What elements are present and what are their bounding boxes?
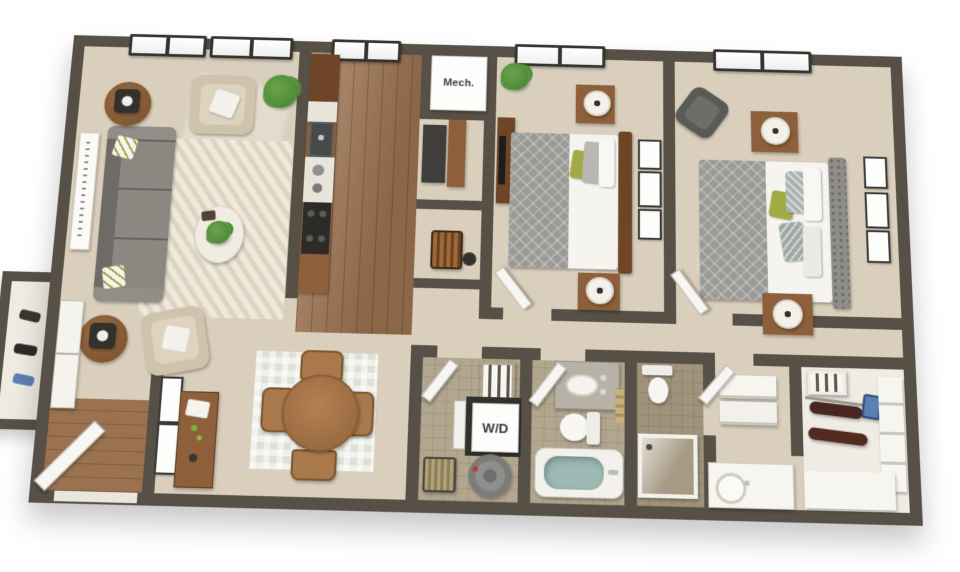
bath2-toilet-tank (642, 365, 672, 376)
wall-hallcloset-bottom (413, 278, 479, 289)
bedroom2-window (713, 49, 812, 73)
closet-door-divider (56, 352, 79, 355)
console-apple-1 (191, 425, 198, 431)
bedroom1-headboard (618, 131, 632, 273)
mech-closet: Mech. (430, 55, 488, 111)
canvas-background: Mech. (0, 0, 960, 572)
console-tray (185, 399, 211, 419)
table-lamp-bottom (88, 323, 117, 349)
kitchen-pantry (308, 54, 340, 102)
dressing-faucet (744, 481, 749, 486)
sofa-armrest-bottom (93, 287, 165, 303)
bedroom1-duvet (508, 132, 570, 268)
bedroom2-lamp-bottom (772, 299, 803, 329)
bedroom1-window (514, 44, 605, 68)
bath1-towels (615, 388, 623, 423)
bathtub-faucet (608, 470, 618, 475)
coffee-table-book (201, 210, 216, 221)
wall-bath1-bath2 (624, 362, 637, 505)
washer-dryer-unit: W/D (471, 403, 519, 453)
hall-closet-basket (430, 230, 463, 269)
bedroom2-frame-2 (864, 192, 889, 229)
living-window-1 (128, 34, 207, 58)
counter-item (312, 164, 324, 176)
kitchen-window (331, 39, 401, 62)
hall-bookcase (447, 120, 467, 188)
wall-hallcloset-top (416, 199, 482, 210)
sofa-pillow-2 (102, 265, 126, 289)
washer-dryer-label: W/D (482, 420, 508, 436)
laundry-basket (422, 457, 456, 493)
bedroom1-pillow-white (599, 138, 615, 187)
kitchen-counter-1 (307, 101, 337, 122)
dressing-shelf-2 (720, 401, 778, 426)
dressing-vanity (708, 462, 795, 510)
bathtub-water (544, 456, 604, 491)
shower (638, 433, 698, 499)
bedroom2-chair-cushion (683, 94, 722, 131)
console-candle (189, 454, 198, 462)
toilet-bowl (560, 413, 589, 441)
wall-bedroom1-bedroom2 (663, 61, 676, 324)
shower-head (646, 444, 652, 450)
faucet (318, 135, 324, 141)
sofa (93, 126, 177, 303)
bedroom1-frame-1 (638, 139, 662, 169)
bedroom2-lamp-top (761, 117, 791, 145)
bedroom1-frame-3 (638, 209, 662, 240)
bedroom2-pillow-white (803, 168, 822, 221)
hamper-red-dot (473, 466, 478, 471)
bedroom1-lamp-top (583, 90, 610, 116)
hall-desk (421, 125, 447, 183)
wall-bedroom1-bottom-a (479, 307, 503, 319)
armchair-top (188, 74, 256, 134)
wall-hall-bath-b (482, 347, 541, 360)
bath1-faucet-1 (600, 375, 606, 381)
front-door-sill (54, 491, 138, 504)
bedroom1-frame-2 (638, 171, 662, 207)
floor-plan: Mech. (28, 35, 922, 526)
bedroom1-tv (498, 136, 506, 185)
bathtub (534, 447, 623, 499)
art-script (77, 139, 91, 241)
bath1-toilet (560, 411, 601, 445)
dining-chair-bottom (290, 449, 337, 481)
dressing-sink (715, 473, 746, 505)
kitchen-counter-2 (303, 157, 335, 203)
table-lamp-top (113, 89, 140, 114)
bedroom1-lamp-bottom (586, 277, 614, 305)
bedroom2-frame-1 (863, 156, 888, 188)
bedroom2-pillow-white-2 (802, 226, 821, 277)
bath2-toilet-bowl (648, 377, 668, 404)
armchair-bottom-pillow (161, 325, 190, 352)
console-table (173, 391, 219, 488)
entry-wood-floor (42, 398, 149, 493)
counter-item-2 (312, 183, 322, 193)
living-window-2 (209, 36, 293, 60)
kitchen-stove (301, 202, 332, 254)
armchair-bottom (140, 304, 211, 378)
bath1-sink (565, 374, 598, 397)
bedroom2-frame-3 (866, 230, 891, 263)
mech-closet-label: Mech. (443, 77, 475, 89)
closet-bottom-counter (804, 471, 896, 511)
toilet-tank (587, 412, 601, 445)
bath1-faucet-2 (600, 389, 606, 395)
closet-top-shelf (806, 369, 847, 396)
laundry-door-panel (453, 400, 467, 449)
kitchen-sink (308, 122, 334, 158)
bedroom2-duvet (699, 160, 769, 301)
console-apple-2 (196, 435, 202, 440)
